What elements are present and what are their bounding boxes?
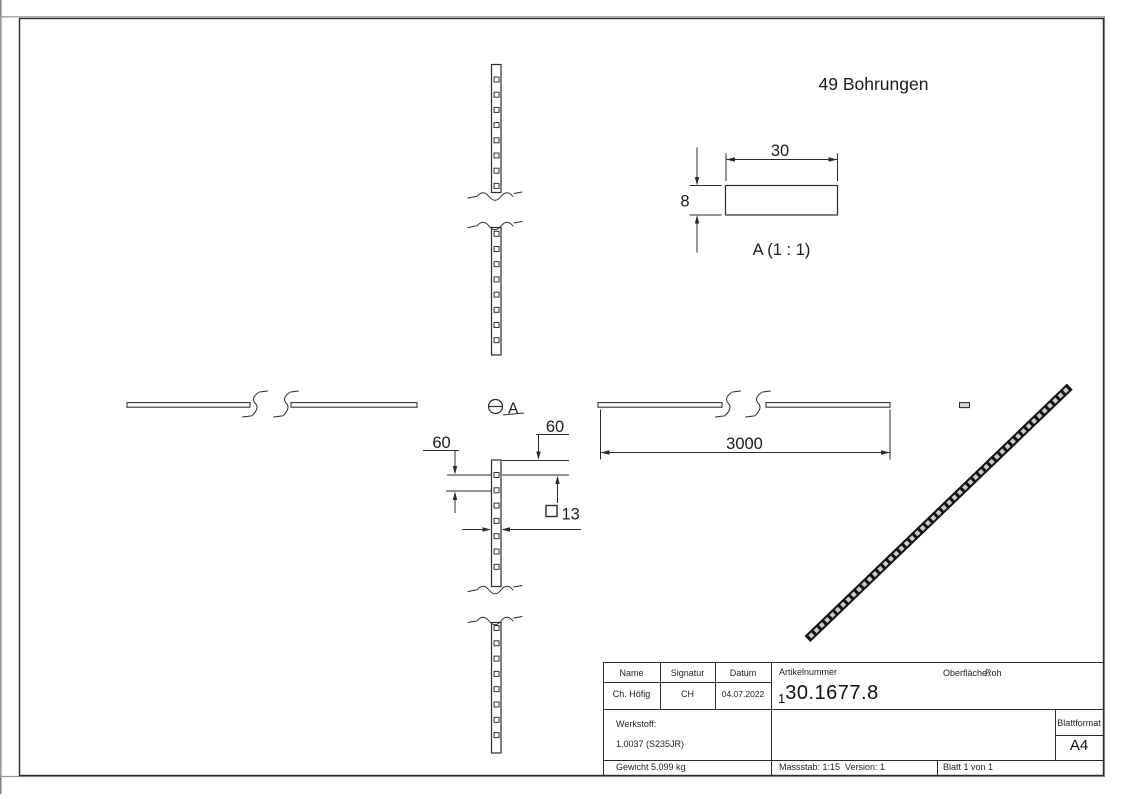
square-hole (494, 656, 499, 661)
arrowhead (829, 157, 838, 161)
arrowhead (726, 157, 735, 161)
square-hole (494, 138, 499, 143)
square-hole (494, 153, 499, 158)
square-hole (494, 702, 499, 707)
view-isometric (805, 384, 1073, 642)
gewicht-text: Gewicht 5.099 kg (616, 763, 686, 773)
square-hole (494, 123, 499, 128)
view-bottom-detail (468, 460, 522, 753)
detail-a-label: A (1 : 1) (753, 241, 811, 259)
square-hole (494, 671, 499, 676)
titleblock-line (937, 760, 938, 775)
artikelnummer-label: Artikelnummer (779, 668, 837, 678)
dimension-pitch-right: 60 (502, 418, 569, 503)
square-hole (494, 687, 499, 692)
titleblock-line (1055, 735, 1103, 736)
datum-label: Datum (715, 669, 771, 679)
dim-3000-text: 3000 (726, 435, 763, 453)
titleblock-line (603, 662, 1103, 663)
name-value: Ch. Höfig (603, 690, 660, 700)
square-hole (494, 323, 499, 328)
square-hole (494, 77, 499, 82)
arrowhead (601, 450, 610, 454)
square-hole (494, 231, 499, 236)
dim-8-text: 8 (680, 193, 689, 211)
square-hole (494, 338, 499, 343)
square-hole (494, 503, 499, 508)
annotation-hole-count: 49 Bohrungen (819, 74, 929, 94)
version-text: Version: 1 (845, 763, 885, 773)
datum-value: 04.07.2022 (715, 690, 771, 699)
name-label: Name (603, 669, 660, 679)
square-hole (494, 564, 499, 569)
square-hole (494, 473, 499, 478)
square-hole (494, 277, 499, 282)
square-hole (494, 641, 499, 646)
square-hole (494, 247, 499, 252)
square-hole (494, 183, 499, 188)
titleblock-line (603, 662, 604, 775)
section-marker: A (489, 400, 525, 418)
blattformat-label: Blattformat (1055, 719, 1103, 729)
arrowhead (453, 492, 457, 501)
square-hole (494, 262, 499, 267)
bar-segment (598, 403, 722, 408)
arrowhead (483, 527, 492, 531)
square-hole (494, 107, 499, 112)
view-top-front (468, 65, 522, 356)
signatur-label: Signatur (660, 669, 715, 679)
dimension-hole-size: 13 (462, 506, 581, 532)
square-hole (494, 92, 499, 97)
square-hole (494, 733, 499, 738)
square-hole (494, 168, 499, 173)
drawing-sheet: 3000 A 60 60 (0, 0, 1123, 794)
arrowhead (555, 476, 559, 485)
blatt-text: Blatt 1 von 1 (943, 763, 993, 773)
iso-hole-row (808, 387, 1069, 638)
artikelnummer-main: 30.1677.8 (785, 682, 878, 704)
square-hole (494, 307, 499, 312)
extension-line (690, 186, 722, 216)
arrowhead (695, 177, 699, 186)
view-end (960, 403, 970, 408)
arrowhead (536, 452, 540, 461)
view-right-side (598, 391, 890, 417)
square-hole (494, 534, 499, 539)
detail-a-view: 49 Bohrungen 30 8 A (1 : 1) (680, 74, 928, 259)
arrowhead (695, 215, 699, 224)
arrowhead (881, 450, 890, 454)
square-hole (494, 549, 499, 554)
square-symbol (546, 506, 557, 517)
detail-rectangle (726, 186, 838, 216)
titleblock-line (603, 709, 1103, 710)
signatur-value: CH (660, 690, 715, 700)
titleblock-line (771, 662, 772, 775)
oberflaeche-value: Roh (985, 669, 1002, 679)
werkstoff-value: 1.0037 (S235JR) (616, 740, 684, 750)
square-hole (494, 518, 499, 523)
view-left-side (127, 391, 417, 417)
square-hole (494, 626, 499, 631)
dim-30-text: 30 (771, 142, 789, 160)
dim-60-right-text: 60 (546, 418, 564, 436)
section-letter: A (508, 401, 519, 418)
bar-segment (127, 403, 250, 408)
massstab-text: Massstab: 1:15 (779, 763, 840, 773)
dimension-pitch-left: 60 (423, 434, 491, 513)
bar-segment (291, 403, 417, 408)
arrowhead (453, 466, 457, 475)
dim-hole-size-text: 13 (562, 506, 580, 524)
square-hole (494, 717, 499, 722)
werkstoff-label: Werkstoff: (616, 720, 656, 730)
blattformat-value: A4 (1055, 738, 1103, 755)
break-line (468, 192, 522, 200)
artikelnummer-value: 130.1677.8 (778, 683, 879, 705)
arrowhead (502, 527, 511, 531)
titleblock-line (603, 760, 1103, 761)
oberflaeche-label: Oberfläche: (943, 669, 990, 679)
dim-60-left-text: 60 (432, 434, 450, 452)
square-hole (494, 488, 499, 493)
square-hole (494, 292, 499, 297)
bar-segment (766, 403, 890, 408)
titleblock-line (603, 682, 771, 683)
